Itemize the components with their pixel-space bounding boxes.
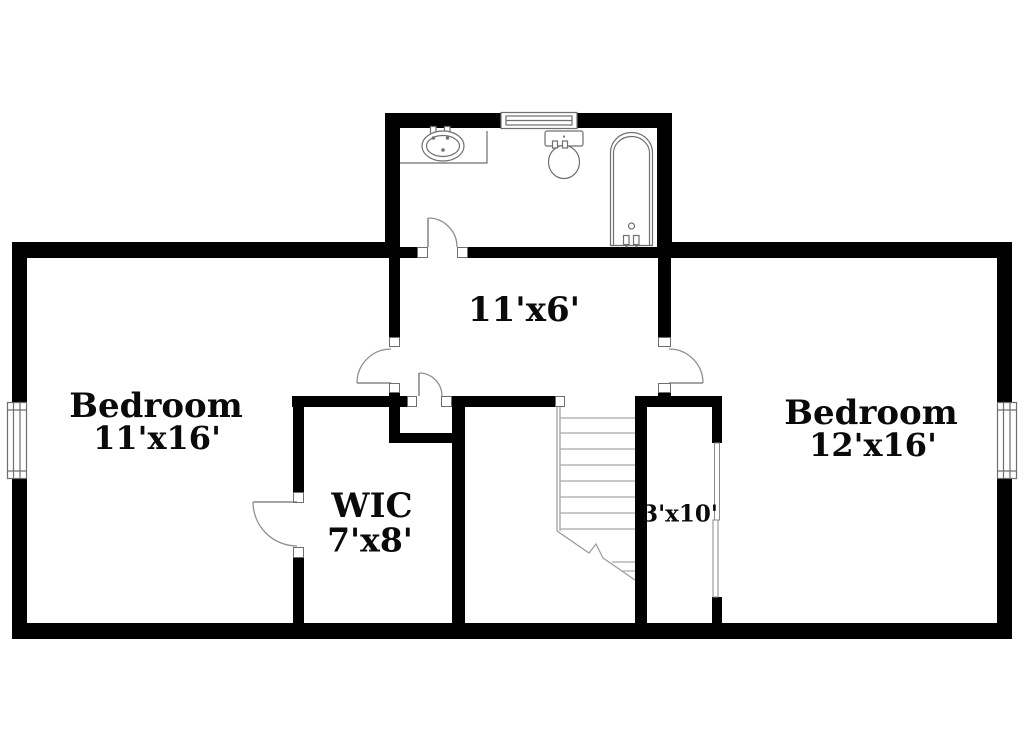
stairs-icon [557,407,635,580]
room-dims-bedroom-left: 11'x16' [93,422,221,454]
door-icon [428,218,457,247]
window-icon [8,403,27,479]
room-label-wic: WIC [331,489,412,523]
window-icon [501,113,577,129]
door-icon [669,349,703,383]
door-icon [419,373,442,396]
room-dims-wic: 7'x8' [327,524,413,557]
window-icon [998,403,1017,479]
room-label-bedroom-left: Bedroom [69,389,242,423]
floor-plan: Bedroom 11'x16' 11'x6' Bedroom 12'x16' W… [0,0,1024,744]
room-dims-bedroom-right: 12'x16' [809,429,937,461]
room-label-bedroom-right: Bedroom [784,396,957,430]
door-icon [357,349,391,383]
room-dims-hall: 11'x6' [468,293,580,327]
room-dims-stair-closet: 3'x10' [642,503,718,526]
toilet-icon [545,131,583,179]
plan-symbols [0,0,1024,744]
bathtub-icon [610,133,652,248]
sink-icon [422,127,464,162]
door-icon [253,502,297,546]
